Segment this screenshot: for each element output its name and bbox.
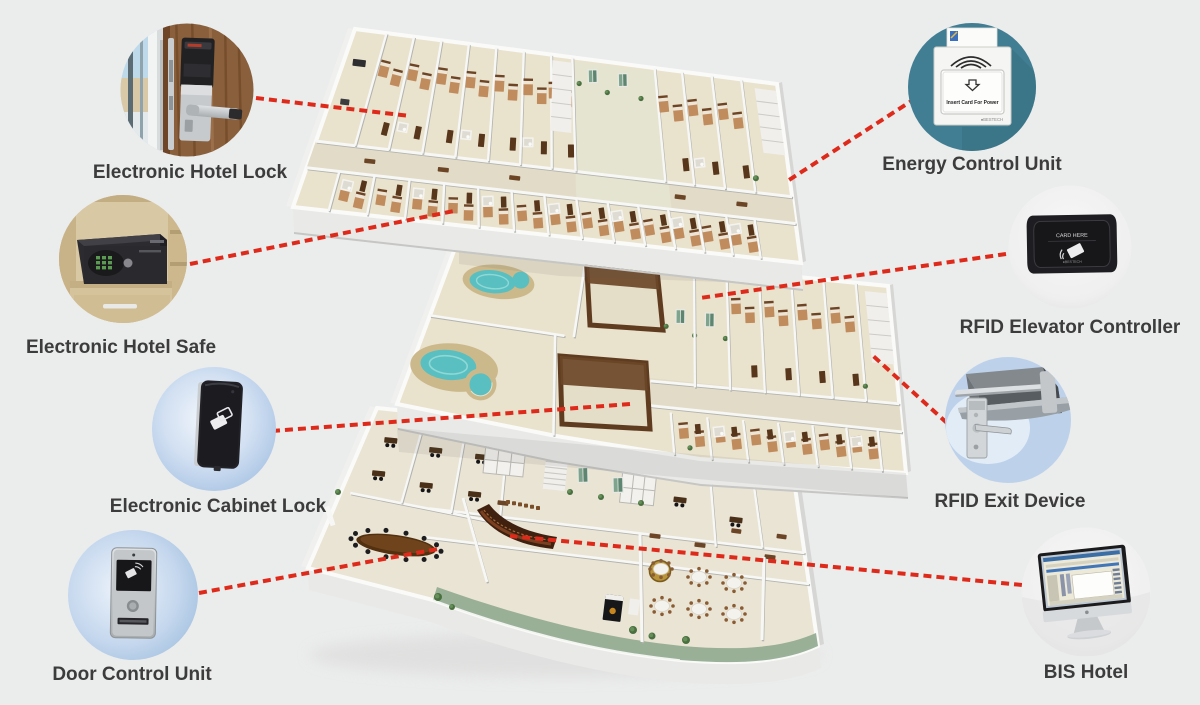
svg-text:Insert Card For Power: Insert Card For Power xyxy=(946,100,998,106)
svg-text:RFID Exit Device: RFID Exit Device xyxy=(935,491,1086,512)
svg-text:Electronic Hotel Lock: Electronic Hotel Lock xyxy=(93,162,288,183)
svg-text:●BESTECH: ●BESTECH xyxy=(981,117,1003,122)
svg-text:BIS Hotel: BIS Hotel xyxy=(1044,662,1128,683)
svg-text:Electronic Hotel Safe: Electronic Hotel Safe xyxy=(26,337,216,358)
svg-text:Electronic Cabinet Lock: Electronic Cabinet Lock xyxy=(110,496,327,517)
svg-text:CARD HERE: CARD HERE xyxy=(1056,233,1088,240)
svg-text:●BESTECH: ●BESTECH xyxy=(1063,260,1083,264)
svg-text:RFID Elevator Controller: RFID Elevator Controller xyxy=(960,317,1181,338)
svg-text:Energy Control Unit: Energy Control Unit xyxy=(882,154,1062,175)
svg-text:Door Control Unit: Door Control Unit xyxy=(52,664,212,685)
